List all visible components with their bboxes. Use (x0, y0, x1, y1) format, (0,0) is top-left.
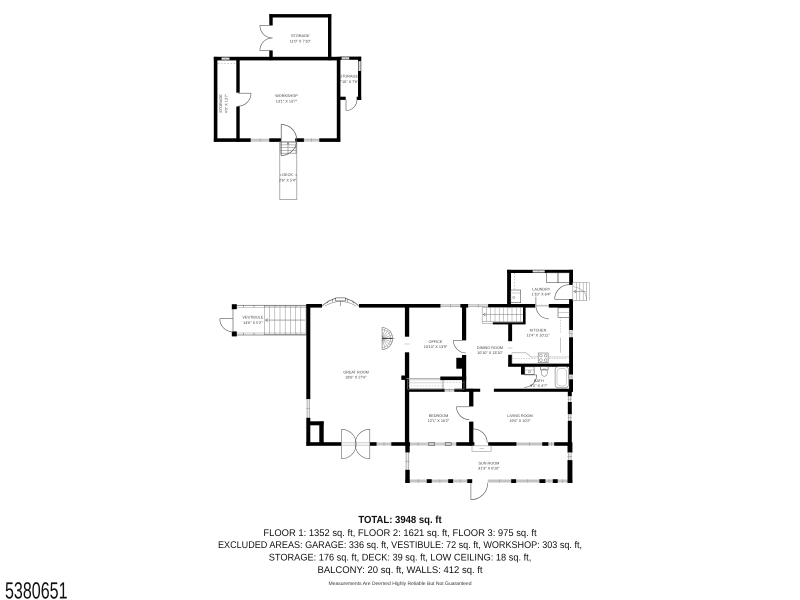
svg-text:4'0" X 13'7": 4'0" X 13'7" (225, 93, 229, 113)
svg-text:OFFICE: OFFICE (429, 340, 443, 344)
svg-text:STORAGE: STORAGE (291, 34, 310, 38)
svg-text:STORAGE: STORAGE (340, 75, 359, 79)
svg-text:LIVING ROOM: LIVING ROOM (507, 414, 532, 418)
svg-text:9'5" X 4'7": 9'5" X 4'7" (530, 384, 548, 388)
svg-text:LAUNDRY: LAUNDRY (532, 287, 551, 291)
svg-text:BALCONY: 20 sq. ft, WALLS: 412: BALCONY: 20 sq. ft, WALLS: 412 sq. ft (318, 565, 483, 576)
svg-text:SUN ROOM: SUN ROOM (478, 461, 499, 465)
svg-text:Measurements Are Deemed Highly: Measurements Are Deemed Highly Reliable … (329, 581, 472, 587)
svg-text:WORKSHOP: WORKSHOP (275, 94, 298, 98)
svg-text:31'3" X 6'10": 31'3" X 6'10" (478, 467, 500, 471)
svg-text:18'6" X 27'6": 18'6" X 27'6" (345, 376, 367, 380)
svg-text:STORAGE: STORAGE (219, 94, 223, 113)
svg-text:EXCLUDED AREAS: GARAGE: 336 sq: EXCLUDED AREAS: GARAGE: 336 sq. ft, VEST… (218, 540, 582, 551)
svg-text:19'0" X 10'2": 19'0" X 10'2" (509, 419, 531, 423)
svg-text:DECK: DECK (282, 173, 293, 177)
svg-text:12'1" X 10'2": 12'1" X 10'2" (428, 419, 450, 423)
svg-text:7'10" X 7'6": 7'10" X 7'6" (339, 80, 359, 84)
svg-text:GREAT ROOM: GREAT ROOM (343, 370, 369, 374)
svg-text:13'1" X 13'7": 13'1" X 13'7" (276, 99, 298, 103)
svg-text:1'10" X 6'4": 1'10" X 6'4" (532, 293, 552, 297)
svg-text:14'6" X 5'2": 14'6" X 5'2" (243, 321, 263, 325)
svg-text:STORAGE: 176 sq. ft, DECK: 39: STORAGE: 176 sq. ft, DECK: 39 sq. ft, LO… (269, 553, 532, 564)
svg-text:5380651: 5380651 (5, 577, 68, 600)
svg-text:BATH: BATH (534, 379, 544, 383)
svg-text:11'4" X 10'11": 11'4" X 10'11" (526, 334, 550, 338)
svg-text:KITCHEN: KITCHEN (530, 328, 547, 332)
svg-text:2'6" X 5'4": 2'6" X 5'4" (279, 178, 297, 182)
svg-text:TOTAL: 3948 sq. ft: TOTAL: 3948 sq. ft (358, 515, 442, 526)
svg-text:VESTIBULE: VESTIBULE (242, 316, 263, 320)
svg-text:FLOOR 1: 1352 sq. ft, FLOOR 2:: FLOOR 1: 1352 sq. ft, FLOOR 2: 1621 sq. … (263, 528, 536, 539)
svg-text:BEDROOM: BEDROOM (429, 414, 449, 418)
svg-text:11'0" X 7'10": 11'0" X 7'10" (290, 39, 312, 43)
svg-text:10'10" X 13'9": 10'10" X 13'9" (424, 345, 448, 349)
svg-text:10'10" X 13'10": 10'10" X 13'10" (477, 351, 503, 355)
svg-text:DINING ROOM: DINING ROOM (477, 346, 503, 350)
